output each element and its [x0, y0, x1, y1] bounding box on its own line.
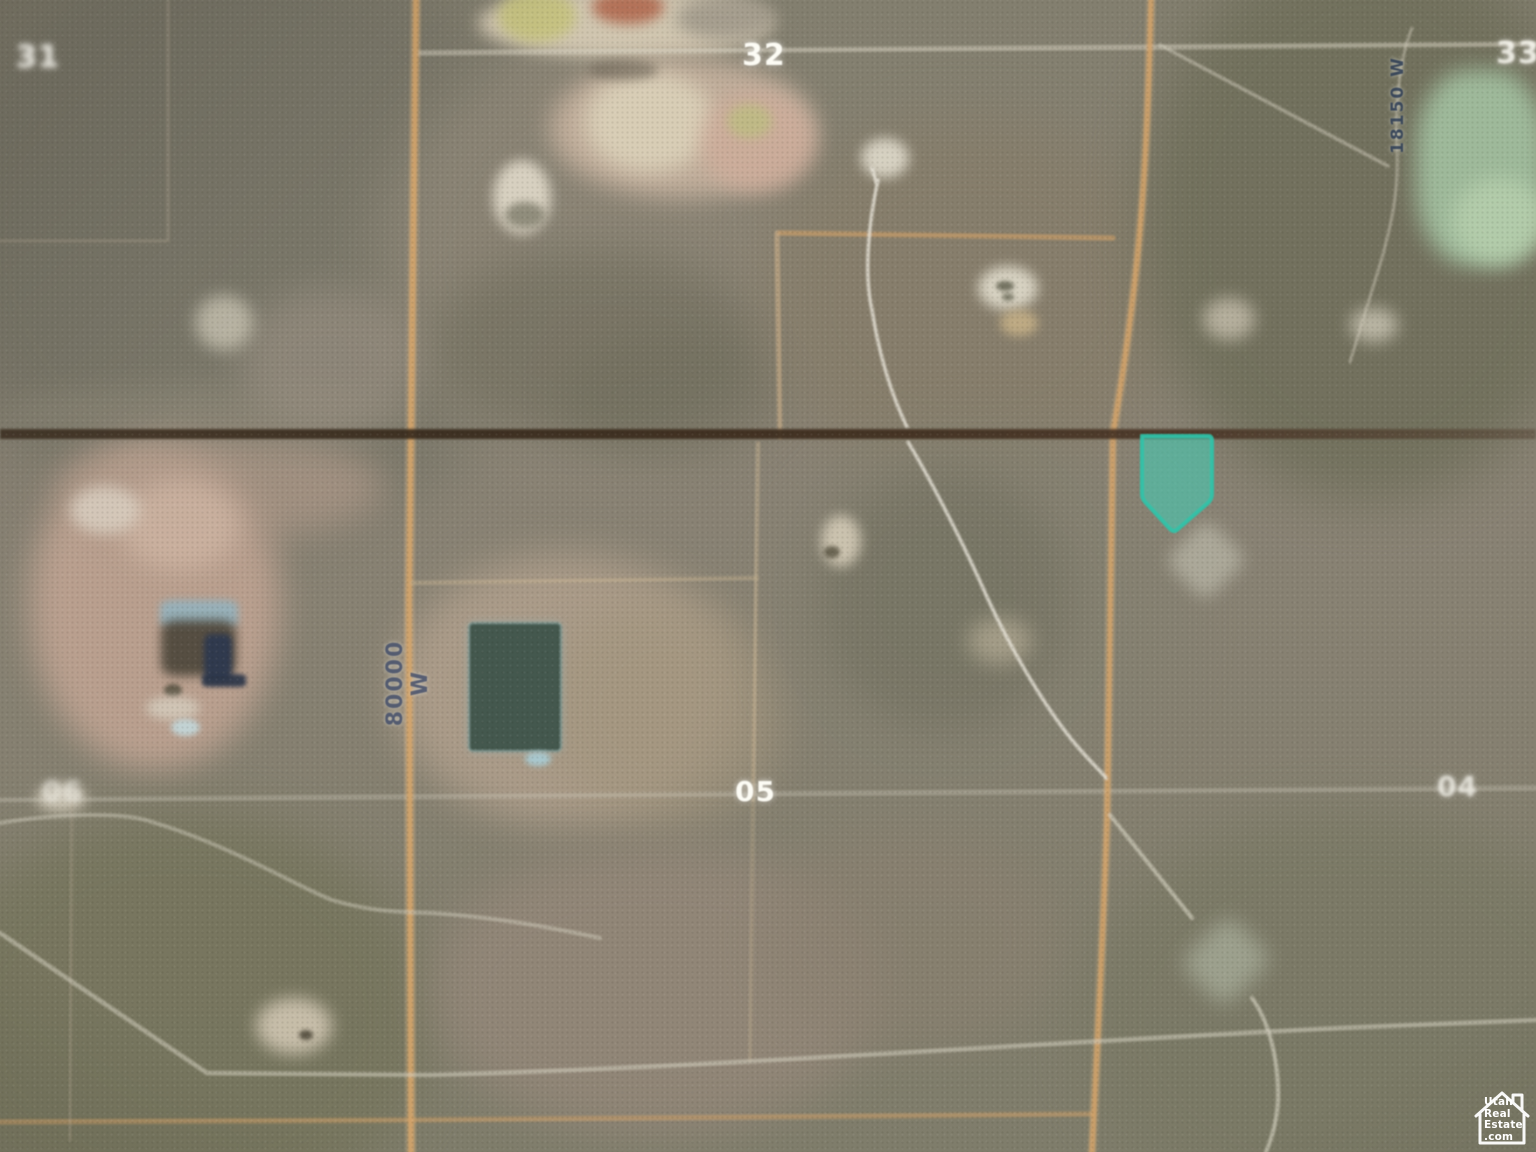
- section-label-31: 31: [16, 40, 60, 75]
- satellite-map: 31 32 33 06 05 04 80000 W 18150 W Utah R…: [0, 0, 1536, 1152]
- watermark-line: Estate: [1484, 1120, 1523, 1132]
- section-label-33: 33: [1496, 36, 1536, 71]
- watermark-line: Utah: [1484, 1097, 1523, 1109]
- section-label-04: 04: [1437, 770, 1478, 803]
- section-label-32: 32: [742, 38, 786, 73]
- section-label-06: 06: [42, 775, 83, 808]
- watermark-text: Utah Real Estate .com: [1484, 1097, 1523, 1143]
- road-label-80000-w: 80000 W: [383, 623, 433, 743]
- section-label-05: 05: [735, 775, 776, 808]
- parcel-highlight: [0, 0, 1536, 1152]
- parcel-highlight-shape: [1142, 436, 1212, 531]
- watermark-line: .com: [1484, 1132, 1523, 1144]
- road-label-18150-w: 18150 W: [1388, 50, 1408, 160]
